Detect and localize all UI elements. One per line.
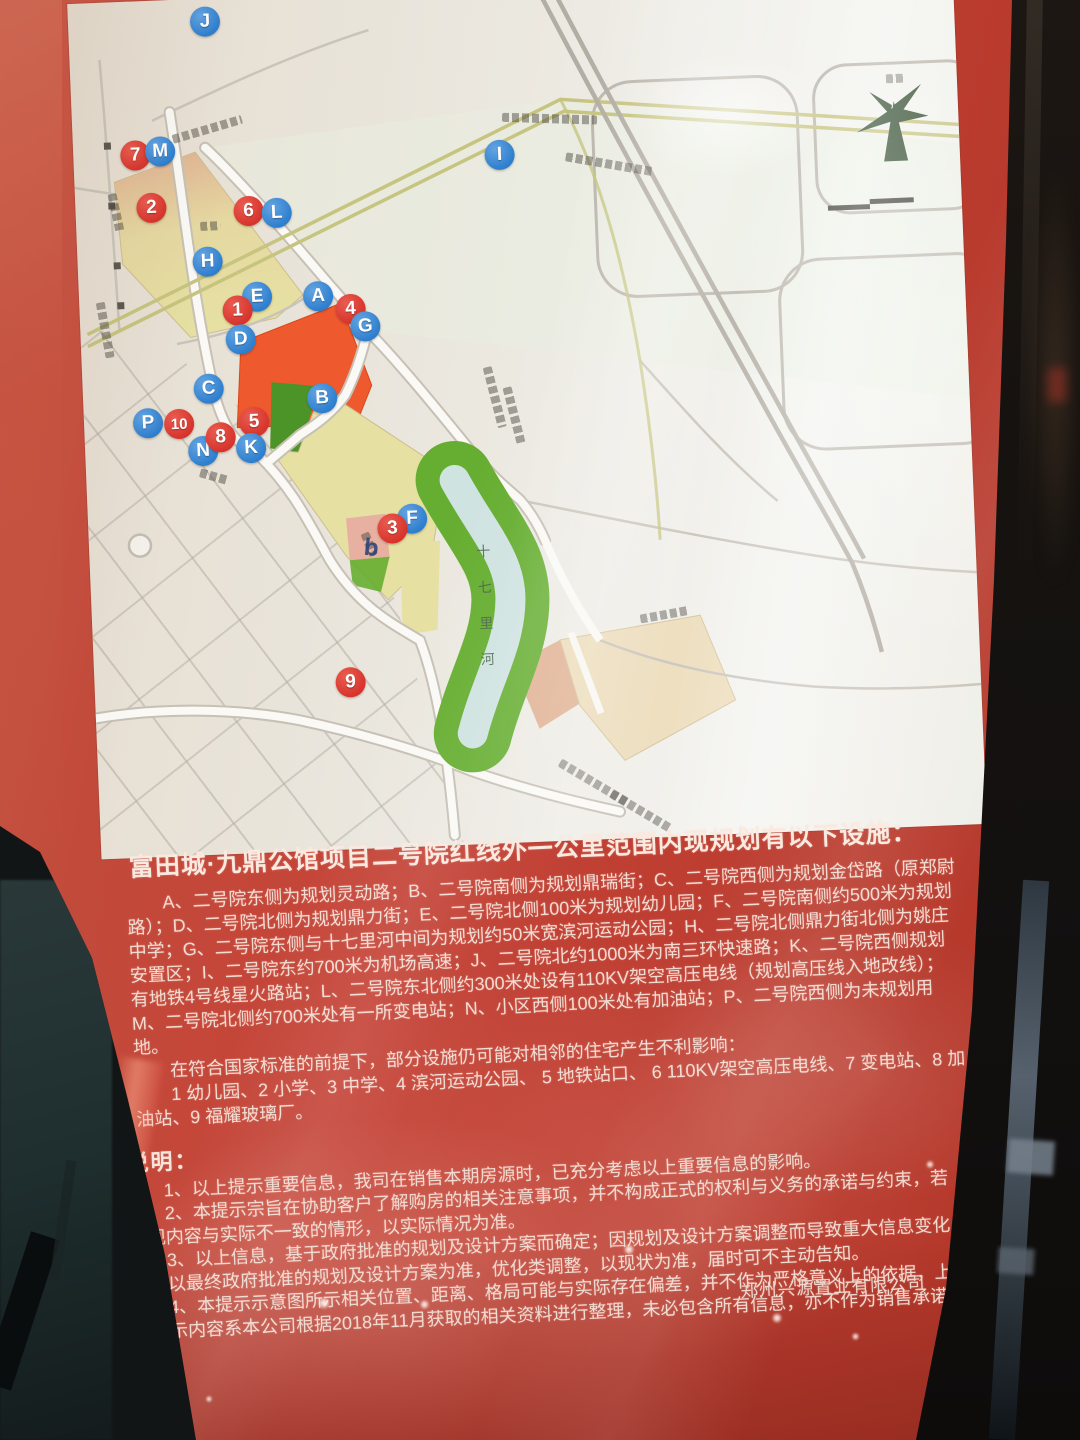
road-label (200, 221, 220, 231)
roundabout (129, 534, 152, 557)
parcel-tan-east (559, 614, 738, 763)
stair-light-1 (1007, 1138, 1055, 1175)
glare-spark (852, 1332, 859, 1341)
glare-spark (926, 1160, 934, 1169)
red-reflection (1048, 368, 1066, 402)
small-map-glyph-b: b (363, 534, 380, 563)
planning-map: 十七里河 b J7M26LIHE1A4GDCBP10N85KF39 (67, 0, 987, 859)
glare-spark (624, 1243, 634, 1256)
glare-spark (206, 1395, 212, 1403)
poster-left-margin (0, 0, 62, 880)
notes-section: 说明： 1、以上提示重要信息，我司在销售本期房源时，已充分考虑以上重要信息的影响… (126, 1114, 970, 1345)
parcel-strip (399, 541, 444, 636)
road-label (886, 74, 904, 84)
glare-spark (318, 1296, 330, 1310)
notes-list: 1、以上提示重要信息，我司在销售本期房源时，已充分考虑以上重要信息的影响。2、本… (127, 1143, 970, 1345)
glare-spark (420, 1299, 429, 1310)
facilities-text: A、二号院东侧为规划灵动路；B、二号院南侧为规划鼎瑞街；C、二号院西侧为规划金岱… (126, 854, 968, 1131)
glare-spark (772, 1312, 782, 1324)
river-crossing-road (545, 538, 600, 642)
photo-of-planning-notice-poster: 十七里河 b J7M26LIHE1A4GDCBP10N85KF39 富田城·九鼎… (0, 0, 1080, 1440)
stair-light-2 (997, 1247, 1035, 1275)
